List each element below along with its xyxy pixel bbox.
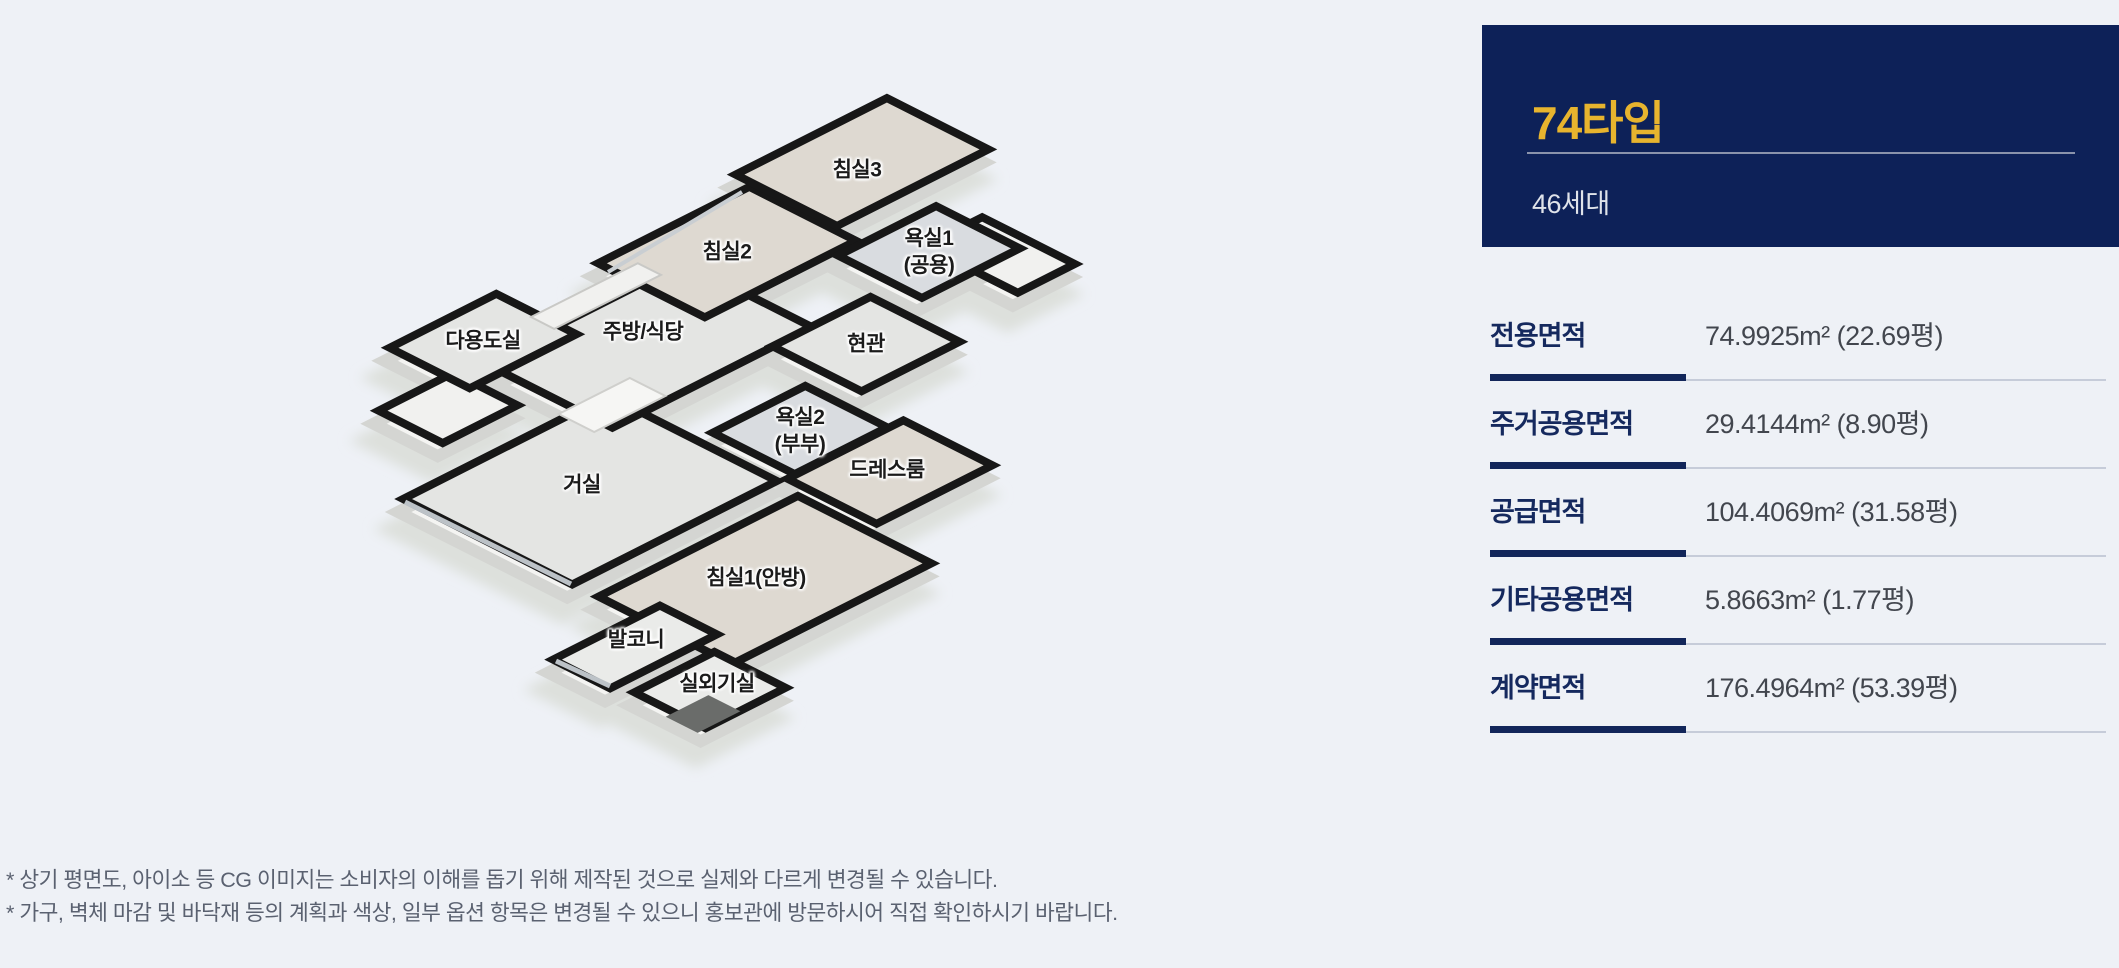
area-row-2: 공급면적104.4069m² (31.58평) — [1490, 469, 2106, 557]
area-row-label-4: 계약면적 — [1490, 666, 1705, 705]
area-row-0: 전용면적74.9925m² (22.69평) — [1490, 293, 2106, 381]
area-row-value-1: 29.4144m² (8.90평) — [1705, 402, 1928, 441]
area-row-label-1: 주거공용면적 — [1490, 402, 1705, 441]
area-row-value-3: 5.8663m² (1.77평) — [1705, 578, 1914, 617]
area-row-rule-4 — [1490, 726, 2106, 733]
area-row-4: 계약면적176.4964m² (53.39평) — [1490, 645, 2106, 733]
area-row-label-3: 기타공용면적 — [1490, 578, 1705, 617]
area-row-3: 기타공용면적5.8663m² (1.77평) — [1490, 557, 2106, 645]
area-row-1: 주거공용면적29.4144m² (8.90평) — [1490, 381, 2106, 469]
area-row-label-0: 전용면적 — [1490, 314, 1705, 353]
area-row-label-2: 공급면적 — [1490, 490, 1705, 529]
unit-count: 46세대 — [1532, 182, 1610, 221]
disclaimer-line-1: * 상기 평면도, 아이소 등 CG 이미지는 소비자의 이해를 돕기 위해 제… — [6, 864, 1118, 897]
area-row-value-4: 176.4964m² (53.39평) — [1705, 666, 1958, 705]
type-title: 74타입 — [1532, 87, 1664, 153]
area-row-value-2: 104.4069m² (31.58평) — [1705, 490, 1958, 529]
card-divider — [1527, 152, 2075, 154]
type-summary-card: 74타입 46세대 — [1482, 25, 2119, 247]
disclaimer-notes: * 상기 평면도, 아이소 등 CG 이미지는 소비자의 이해를 돕기 위해 제… — [6, 864, 1118, 930]
area-row-rule-1 — [1490, 462, 2106, 469]
page: 거실주방/식당침실1(안방)침실2침실3욕실1 (공용)현관욕실2 (부부)드레… — [0, 0, 2119, 968]
area-row-rule-2 — [1490, 550, 2106, 557]
area-row-rule-3 — [1490, 638, 2106, 645]
area-table: 전용면적74.9925m² (22.69평)주거공용면적29.4144m² (8… — [1490, 293, 2106, 733]
disclaimer-line-2: * 가구, 벽체 마감 및 바닥재 등의 계획과 색상, 일부 옵션 항목은 변… — [6, 897, 1118, 930]
area-row-rule-0 — [1490, 374, 2106, 381]
area-row-value-0: 74.9925m² (22.69평) — [1705, 314, 1943, 353]
